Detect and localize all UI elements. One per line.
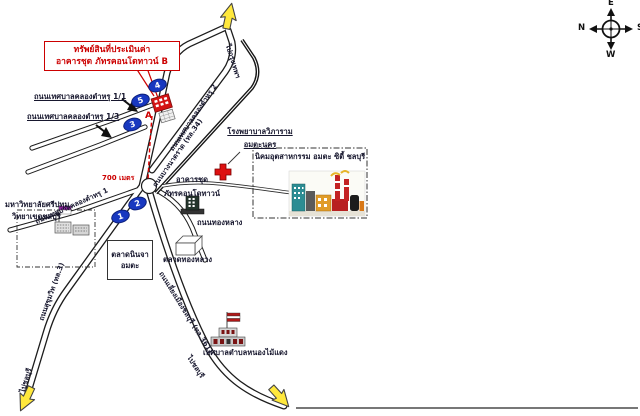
road-label-soi-1-3: ถนนเทศบาลคลองตำหรุ 1/3 (27, 112, 119, 122)
university-buildings-icon (55, 222, 89, 235)
property-callout-box: ทรัพย์สินที่ประเมินค่า อาคารชุด ภัทรคอนโ… (44, 41, 180, 71)
property-callout-line2: อาคารชุด ภัทรคอนโดทาวน์ B (56, 56, 168, 68)
compass-east-label: E (608, 0, 614, 8)
municipality-building-icon (211, 312, 245, 346)
university-label-line2: วิทยาเขตชลบุรี (12, 212, 61, 222)
factory-illustration (289, 171, 365, 216)
condo-label-line2: ภัทรคอนโดทาวน์ (158, 189, 226, 199)
condo-label-line1: อาคารชุด (168, 175, 216, 185)
property-callout-line1: ทรัพย์สินที่ประเมินค่า (74, 44, 151, 56)
hospital-label-line1: โรงพยาบาลวิภาราม (218, 127, 302, 137)
property-building-icon (151, 94, 172, 113)
university-label-line1: มหาวิทยาลัยศรีปทุม (5, 200, 69, 210)
distance-label-700m: 700 เมตร (102, 174, 134, 183)
ninja-market-box: ตลาดนินจา อมตะ (107, 240, 153, 280)
ninja-market-line2: อมตะ (121, 260, 139, 271)
compass-west-label: W (606, 50, 615, 60)
industrial-estate-label: นิคมอุตสาหกรรม อมตะ ซิตี้ ชลบุรี (254, 152, 366, 162)
thonglang-market-label: ตลาดทองหลาง (163, 255, 212, 265)
hospital-label-line2: อมตะนคร (218, 140, 302, 150)
hospital-leader-line (228, 152, 240, 164)
compass-north-label: N (578, 23, 585, 33)
ninja-market-line1: ตลาดนินจา (111, 249, 148, 260)
municipality-label: เทศบาลตำบลหนองไม้แดง (203, 348, 288, 358)
soi13-pointer-arrow (96, 125, 112, 138)
marker-property-a: A (145, 110, 152, 122)
road-label-soi-1-1: ถนนเทศบาลคลองตำหรุ 1/1 (34, 92, 126, 102)
road-label-thonglang: ถนนทองหลาง (197, 218, 242, 228)
map-canvas: ทรัพย์สินที่ประเมินค่า อาคารชุด ภัทรคอนโ… (0, 0, 640, 416)
compass-rose-icon (589, 8, 633, 50)
thonglang-market-icon (176, 236, 202, 255)
hospital-cross-icon (215, 164, 231, 180)
